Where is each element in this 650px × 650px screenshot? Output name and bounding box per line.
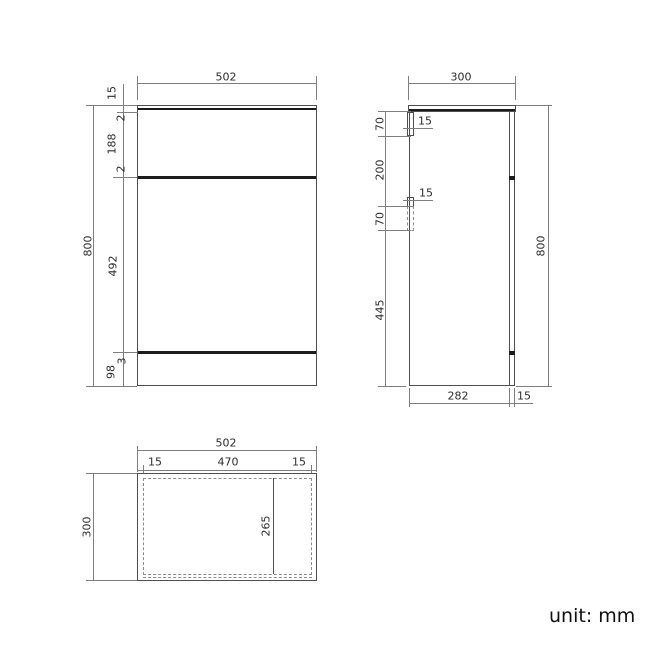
plan-partition-line bbox=[273, 478, 274, 574]
plan-hidden-front-edge bbox=[143, 577, 312, 578]
plan-view: 265 502 15 470 15 300 bbox=[0, 0, 650, 650]
plan-left-inset-label: 15 bbox=[148, 457, 162, 468]
plan-right-inset-label: 15 bbox=[292, 457, 306, 468]
plan-hidden-body-outline bbox=[143, 478, 312, 575]
plan-inner-width-label: 470 bbox=[218, 457, 239, 468]
plan-inner-extension-left bbox=[143, 465, 144, 473]
plan-depth-label: 300 bbox=[82, 517, 93, 538]
plan-depth-tick-top bbox=[86, 473, 137, 474]
plan-inner-extension-right bbox=[311, 465, 312, 473]
unit-label: unit: mm bbox=[549, 605, 635, 627]
plan-width-label: 502 bbox=[216, 438, 237, 449]
plan-inner-dim-line bbox=[137, 470, 317, 471]
plan-depth-tick-bottom bbox=[86, 580, 137, 581]
plan-width-dim-line bbox=[137, 450, 317, 451]
technical-drawing-canvas: 502 800 15 2 188 2 492 3 98 bbox=[0, 0, 650, 650]
plan-partition-depth-label: 265 bbox=[261, 516, 272, 537]
